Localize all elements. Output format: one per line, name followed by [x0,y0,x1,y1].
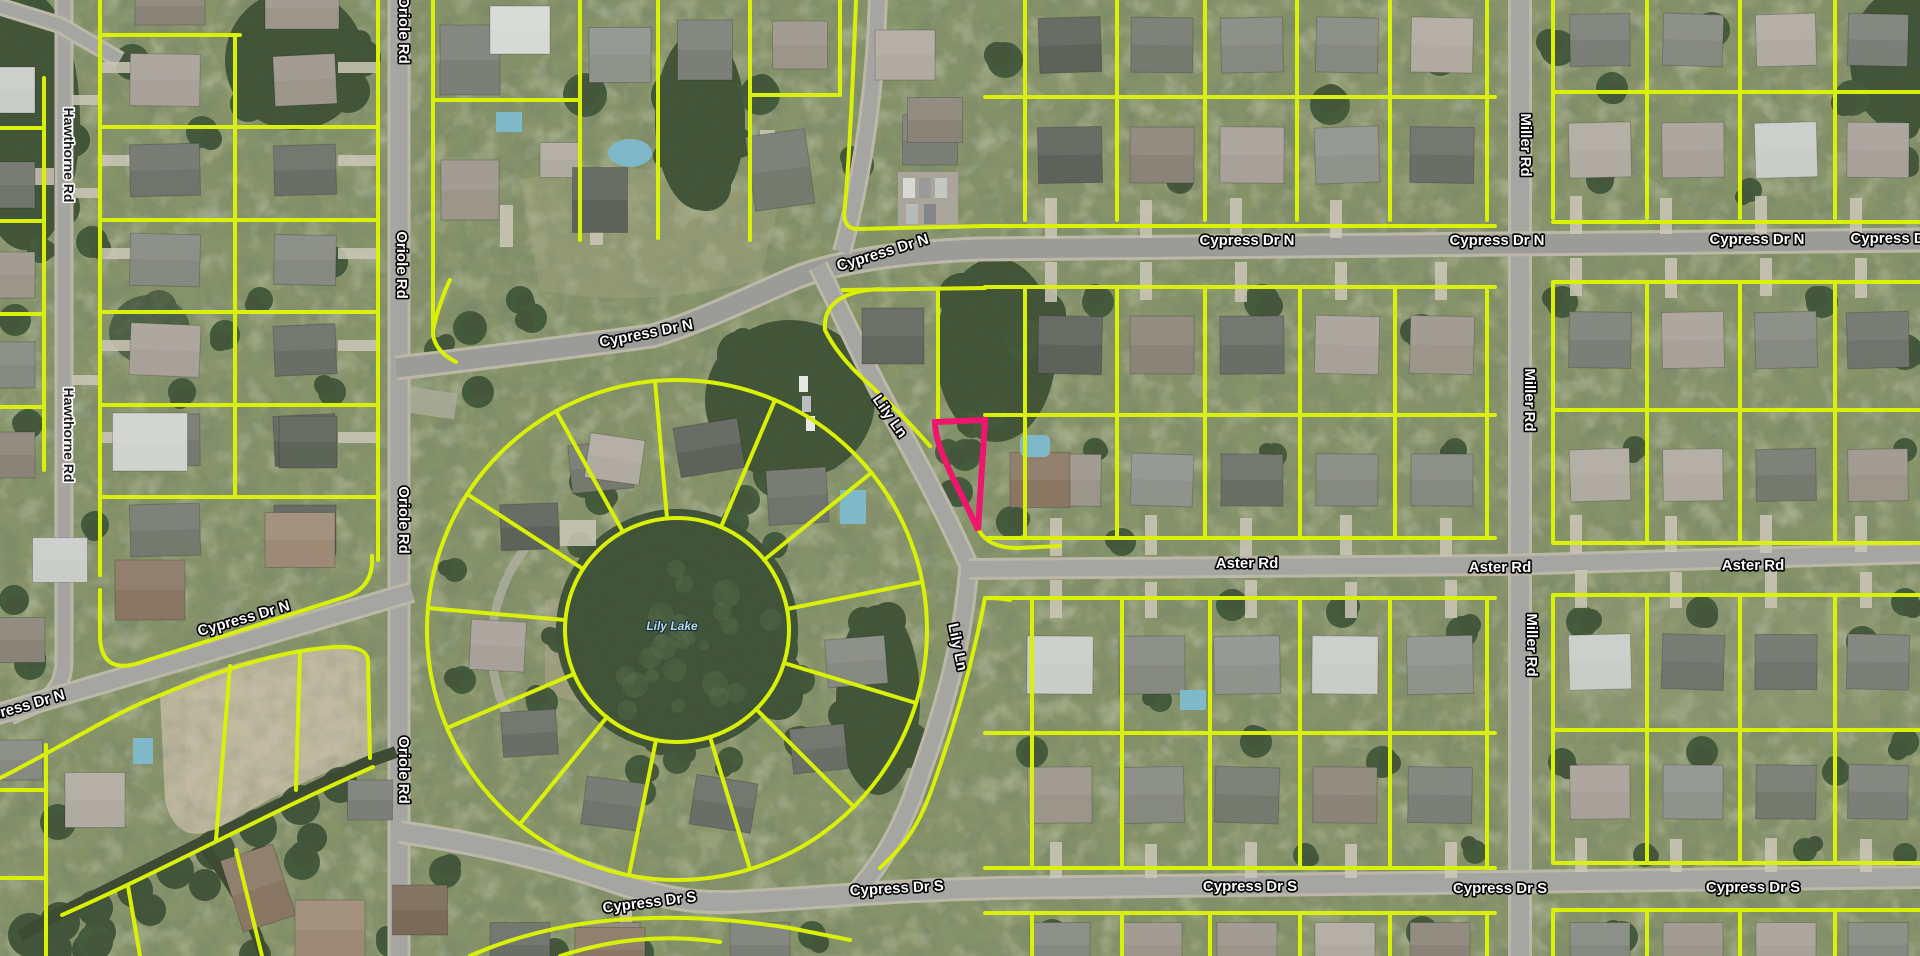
svg-text:Aster Rd: Aster Rd [1216,555,1279,572]
svg-text:Lily Lake: Lily Lake [646,619,698,633]
svg-text:Cypress Dr N: Cypress Dr N [1449,232,1544,249]
svg-text:Hawthorne Rd: Hawthorne Rd [61,388,77,483]
svg-text:Aster Rd: Aster Rd [1469,559,1532,576]
svg-text:Cypress Dr N: Cypress Dr N [1850,230,1920,247]
svg-text:Oriole Rd: Oriole Rd [395,0,412,64]
svg-text:Cypress Dr N: Cypress Dr N [1199,232,1294,249]
svg-text:Miller Rd: Miller Rd [1523,613,1540,676]
svg-text:Cypress Dr S: Cypress Dr S [1453,880,1547,897]
svg-text:Oriole Rd: Oriole Rd [395,736,412,804]
svg-text:Cypress Dr S: Cypress Dr S [1203,878,1297,895]
svg-text:Cypress Dr S: Cypress Dr S [1706,879,1800,896]
svg-text:Miller Rd: Miller Rd [1521,368,1538,431]
svg-text:Miller Rd: Miller Rd [1517,113,1534,176]
svg-text:Oriole Rd: Oriole Rd [393,231,410,299]
svg-text:Cypress Dr N: Cypress Dr N [1709,231,1804,248]
svg-text:Aster Rd: Aster Rd [1722,557,1785,574]
svg-text:Hawthorne Rd: Hawthorne Rd [61,108,77,203]
svg-text:Oriole Rd: Oriole Rd [395,486,412,554]
